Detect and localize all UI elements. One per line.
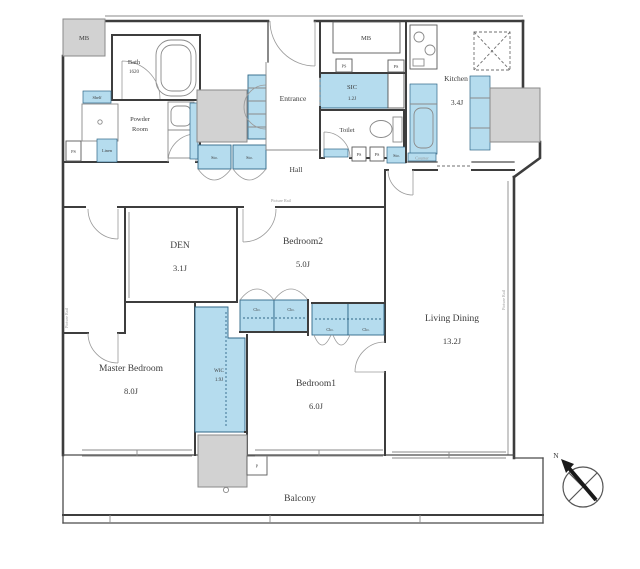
front-door-arc <box>270 21 315 66</box>
closet-b1-label: Clo. <box>326 327 333 332</box>
toilet-hand-basin <box>324 149 348 157</box>
wash-basin <box>171 106 191 126</box>
structural-column-2 <box>490 88 540 142</box>
entrance-label: Entrance <box>280 94 307 103</box>
balcony-structure <box>63 455 543 523</box>
balcony-drain <box>223 487 228 492</box>
bedroom1-walls <box>245 335 385 455</box>
closet-a1 <box>240 300 274 332</box>
kitchen-tall-cabinet <box>470 76 490 150</box>
stove <box>410 25 437 69</box>
picture-rail-note-right: Picture Rail <box>501 289 506 310</box>
floor-plan-canvas: MB MB Bath 1620 Powder Room Shelf PS Lin… <box>0 0 640 569</box>
closet-a2-label: Clo. <box>287 307 294 312</box>
hall-label: Hall <box>290 165 303 174</box>
north-label: N <box>553 451 559 460</box>
bedroom2-door-arc <box>243 209 276 242</box>
washer-pan <box>82 104 118 141</box>
storage-box-1-label: Sto. <box>211 155 218 160</box>
closet-a1-label: Clo. <box>253 307 260 312</box>
bedroom2-label: Bedroom2 <box>283 237 323 247</box>
kitchen-size: 3.4J <box>451 98 463 107</box>
powder-room-label-2: Room <box>132 126 148 133</box>
bath-door-arc <box>122 61 160 99</box>
closet-a2 <box>274 300 308 332</box>
closet-b2-label: Clo. <box>362 327 369 332</box>
pipe-space-2-label: PS <box>342 64 347 69</box>
bedroom2-size: 5.0J <box>296 259 311 269</box>
kitchen-label: Kitchen <box>444 74 468 83</box>
pipe-space-1-label: PS <box>71 149 76 154</box>
wic-size: 1.9J <box>215 378 223 383</box>
den-size: 3.1J <box>173 263 188 273</box>
meter-box-right-label: MB <box>361 35 372 42</box>
picture-rail-note-top: Picture Rail <box>271 198 292 203</box>
toilet-bowl <box>370 121 392 138</box>
master-bedroom-size: 8.0J <box>124 386 139 396</box>
pipe-space-3-label: PS <box>394 64 399 69</box>
balcony-label: Balcony <box>284 494 316 504</box>
toilet-label: Toilet <box>339 127 354 134</box>
shelf-label: Shelf <box>92 95 102 100</box>
toilet-tank <box>393 117 402 142</box>
sic-label: SIC <box>347 84 357 91</box>
storage-box-3-label: Sto. <box>393 153 400 158</box>
compass: N <box>553 451 603 507</box>
powder-room-label-1: Powder <box>130 116 151 123</box>
wic-label: WIC <box>214 369 224 374</box>
pipe-space-5-label: PS <box>375 152 380 157</box>
living-dining-size: 13.2J <box>443 336 462 346</box>
bathtub <box>156 40 196 96</box>
structural-column-1 <box>197 90 247 142</box>
closet-a-folding-doors <box>240 289 308 300</box>
picture-rail-note-left: Picture Rail <box>64 307 69 328</box>
washer-drain <box>98 120 102 124</box>
balcony-windows <box>82 450 506 458</box>
shoe-storage <box>248 75 266 139</box>
bedroom1-door-arc <box>355 342 385 372</box>
den-label: DEN <box>170 241 190 251</box>
pipe-space-4-label: PS <box>357 152 362 157</box>
kitchen-room <box>406 21 540 162</box>
bedroom1-label: Bedroom1 <box>296 379 336 389</box>
north-arrow <box>568 467 596 500</box>
bath-label: Bath <box>128 59 141 66</box>
master-door-arc <box>88 333 118 363</box>
storage-box-2-label: Sto. <box>246 155 253 160</box>
living-door-arc <box>388 170 413 195</box>
counter-label: Counter <box>415 156 429 161</box>
linen-label: Linen <box>102 148 113 153</box>
master-bedroom-walls <box>63 302 195 455</box>
den-room <box>125 207 237 302</box>
bedroom1-size: 6.0J <box>309 401 324 411</box>
bath-size: 1620 <box>129 70 140 75</box>
hallway-door-arc <box>88 209 118 239</box>
structural-column-3 <box>198 435 247 487</box>
master-bedroom-label: Master Bedroom <box>99 364 164 374</box>
floor-plan-drawing: MB MB Bath 1620 Powder Room Shelf PS Lin… <box>0 0 640 569</box>
bath-room <box>112 35 200 100</box>
meter-box-left-label: MB <box>79 35 90 42</box>
living-dining-label: Living Dining <box>425 314 479 324</box>
closet-b-folding-doors <box>314 335 350 345</box>
bathtub-inner <box>161 45 191 91</box>
storage-folding-doors <box>198 169 266 180</box>
sic-size: 1.2J <box>348 97 356 102</box>
closet-band <box>240 289 384 345</box>
